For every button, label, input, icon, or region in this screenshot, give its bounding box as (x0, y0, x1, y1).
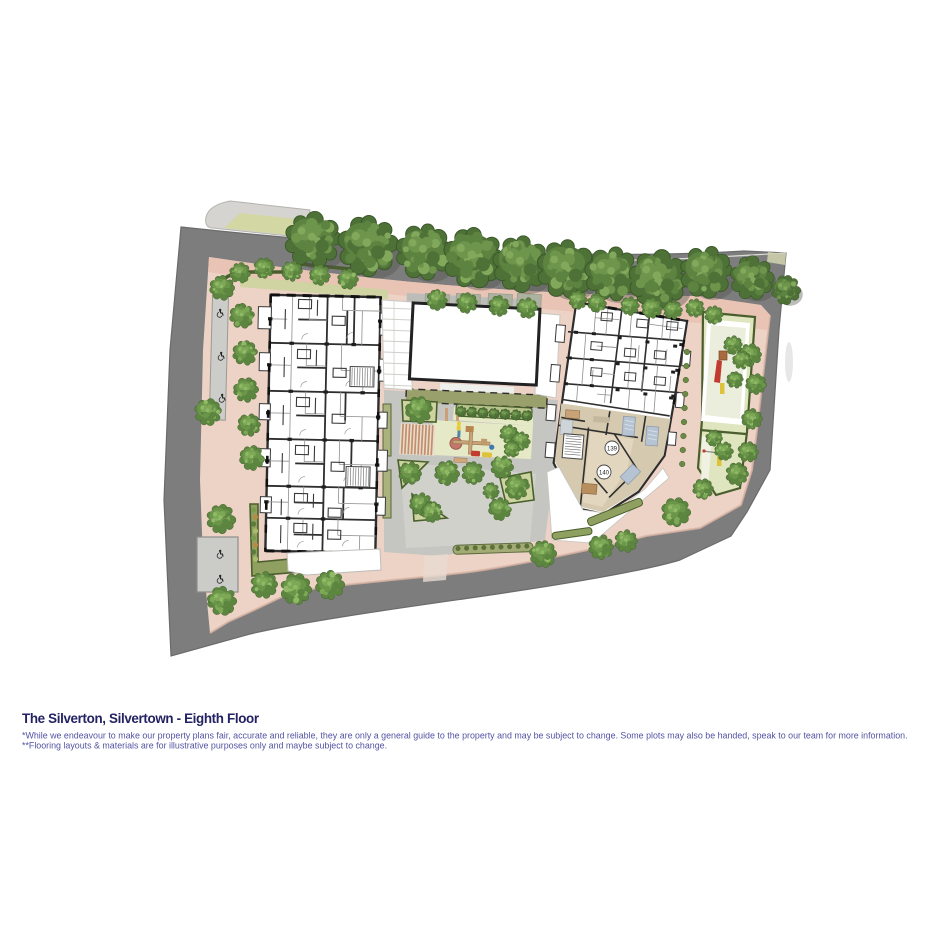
svg-text:The Silverton, Silvertown - Ei: The Silverton, Silvertown - Eighth Floor (22, 711, 260, 726)
svg-text:**Flooring layouts & materials: **Flooring layouts & materials are for i… (22, 741, 387, 751)
svg-text:140: 140 (599, 471, 610, 477)
svg-text:*While we endeavour to make ou: *While we endeavour to make our property… (22, 731, 908, 741)
svg-text:139: 139 (607, 447, 618, 453)
